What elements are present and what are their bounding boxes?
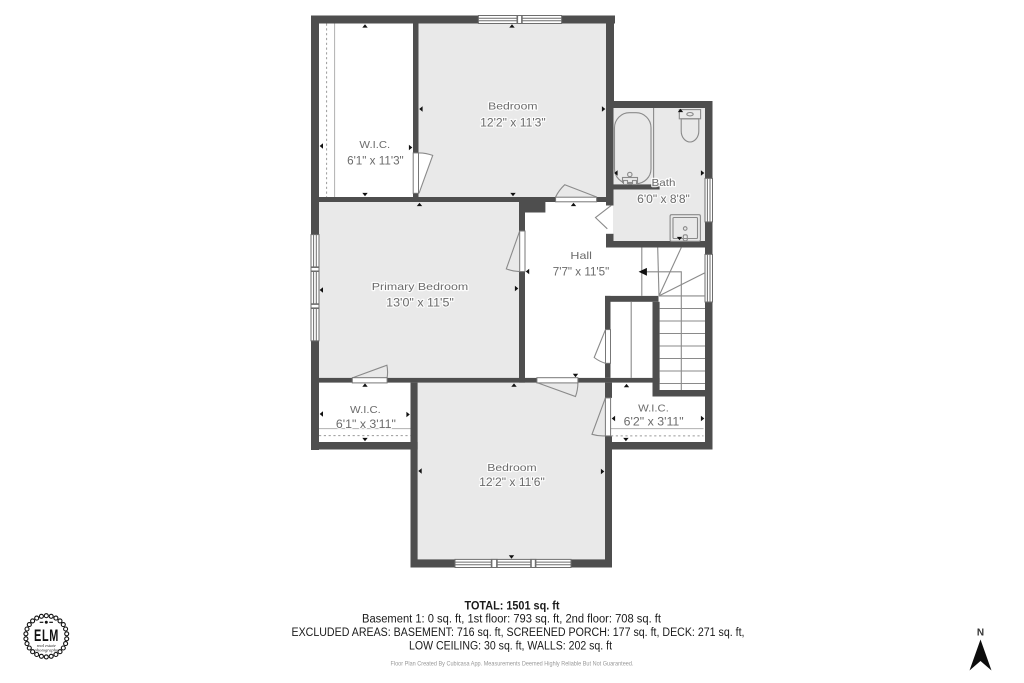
svg-text:12'2" x 11'3": 12'2" x 11'3" (480, 116, 546, 130)
svg-text:Floor Plan Created By Cubicasa: Floor Plan Created By Cubicasa App. Meas… (391, 661, 634, 668)
svg-text:6'0" x 8'8": 6'0" x 8'8" (637, 192, 690, 206)
svg-text:photography: photography (34, 648, 59, 653)
svg-text:W.I.C.: W.I.C. (638, 403, 669, 415)
svg-text:Bath: Bath (652, 177, 676, 189)
svg-text:N: N (977, 628, 984, 639)
svg-text:LOW CEILING: 30 sq. ft, WALLS:: LOW CEILING: 30 sq. ft, WALLS: 202 sq. f… (409, 640, 613, 652)
svg-text:12'2" x 11'6": 12'2" x 11'6" (479, 475, 545, 489)
svg-text:Bedroom: Bedroom (488, 101, 538, 113)
svg-text:Basement 1: 0 sq. ft, 1st floo: Basement 1: 0 sq. ft, 1st floor: 793 sq.… (362, 614, 662, 626)
svg-text:Bedroom: Bedroom (487, 462, 537, 474)
svg-text:W.I.C.: W.I.C. (359, 139, 390, 151)
svg-text:EXCLUDED AREAS: BASEMENT: 716: EXCLUDED AREAS: BASEMENT: 716 sq. ft, SC… (292, 627, 745, 639)
svg-text:6'1" x 11'3": 6'1" x 11'3" (347, 153, 404, 167)
svg-text:Hall: Hall (570, 250, 592, 262)
svg-text:W.I.C.: W.I.C. (350, 404, 381, 416)
svg-text:TOTAL: 1501 sq. ft: TOTAL: 1501 sq. ft (465, 598, 560, 612)
svg-text:Primary Bedroom: Primary Bedroom (372, 281, 469, 293)
svg-text:13'0" x 11'5": 13'0" x 11'5" (386, 295, 454, 309)
svg-text:6'1" x 3'11": 6'1" x 3'11" (336, 417, 396, 431)
svg-text:6'2" x 3'11": 6'2" x 3'11" (624, 415, 684, 429)
svg-text:7'7" x 11'5": 7'7" x 11'5" (553, 264, 610, 278)
